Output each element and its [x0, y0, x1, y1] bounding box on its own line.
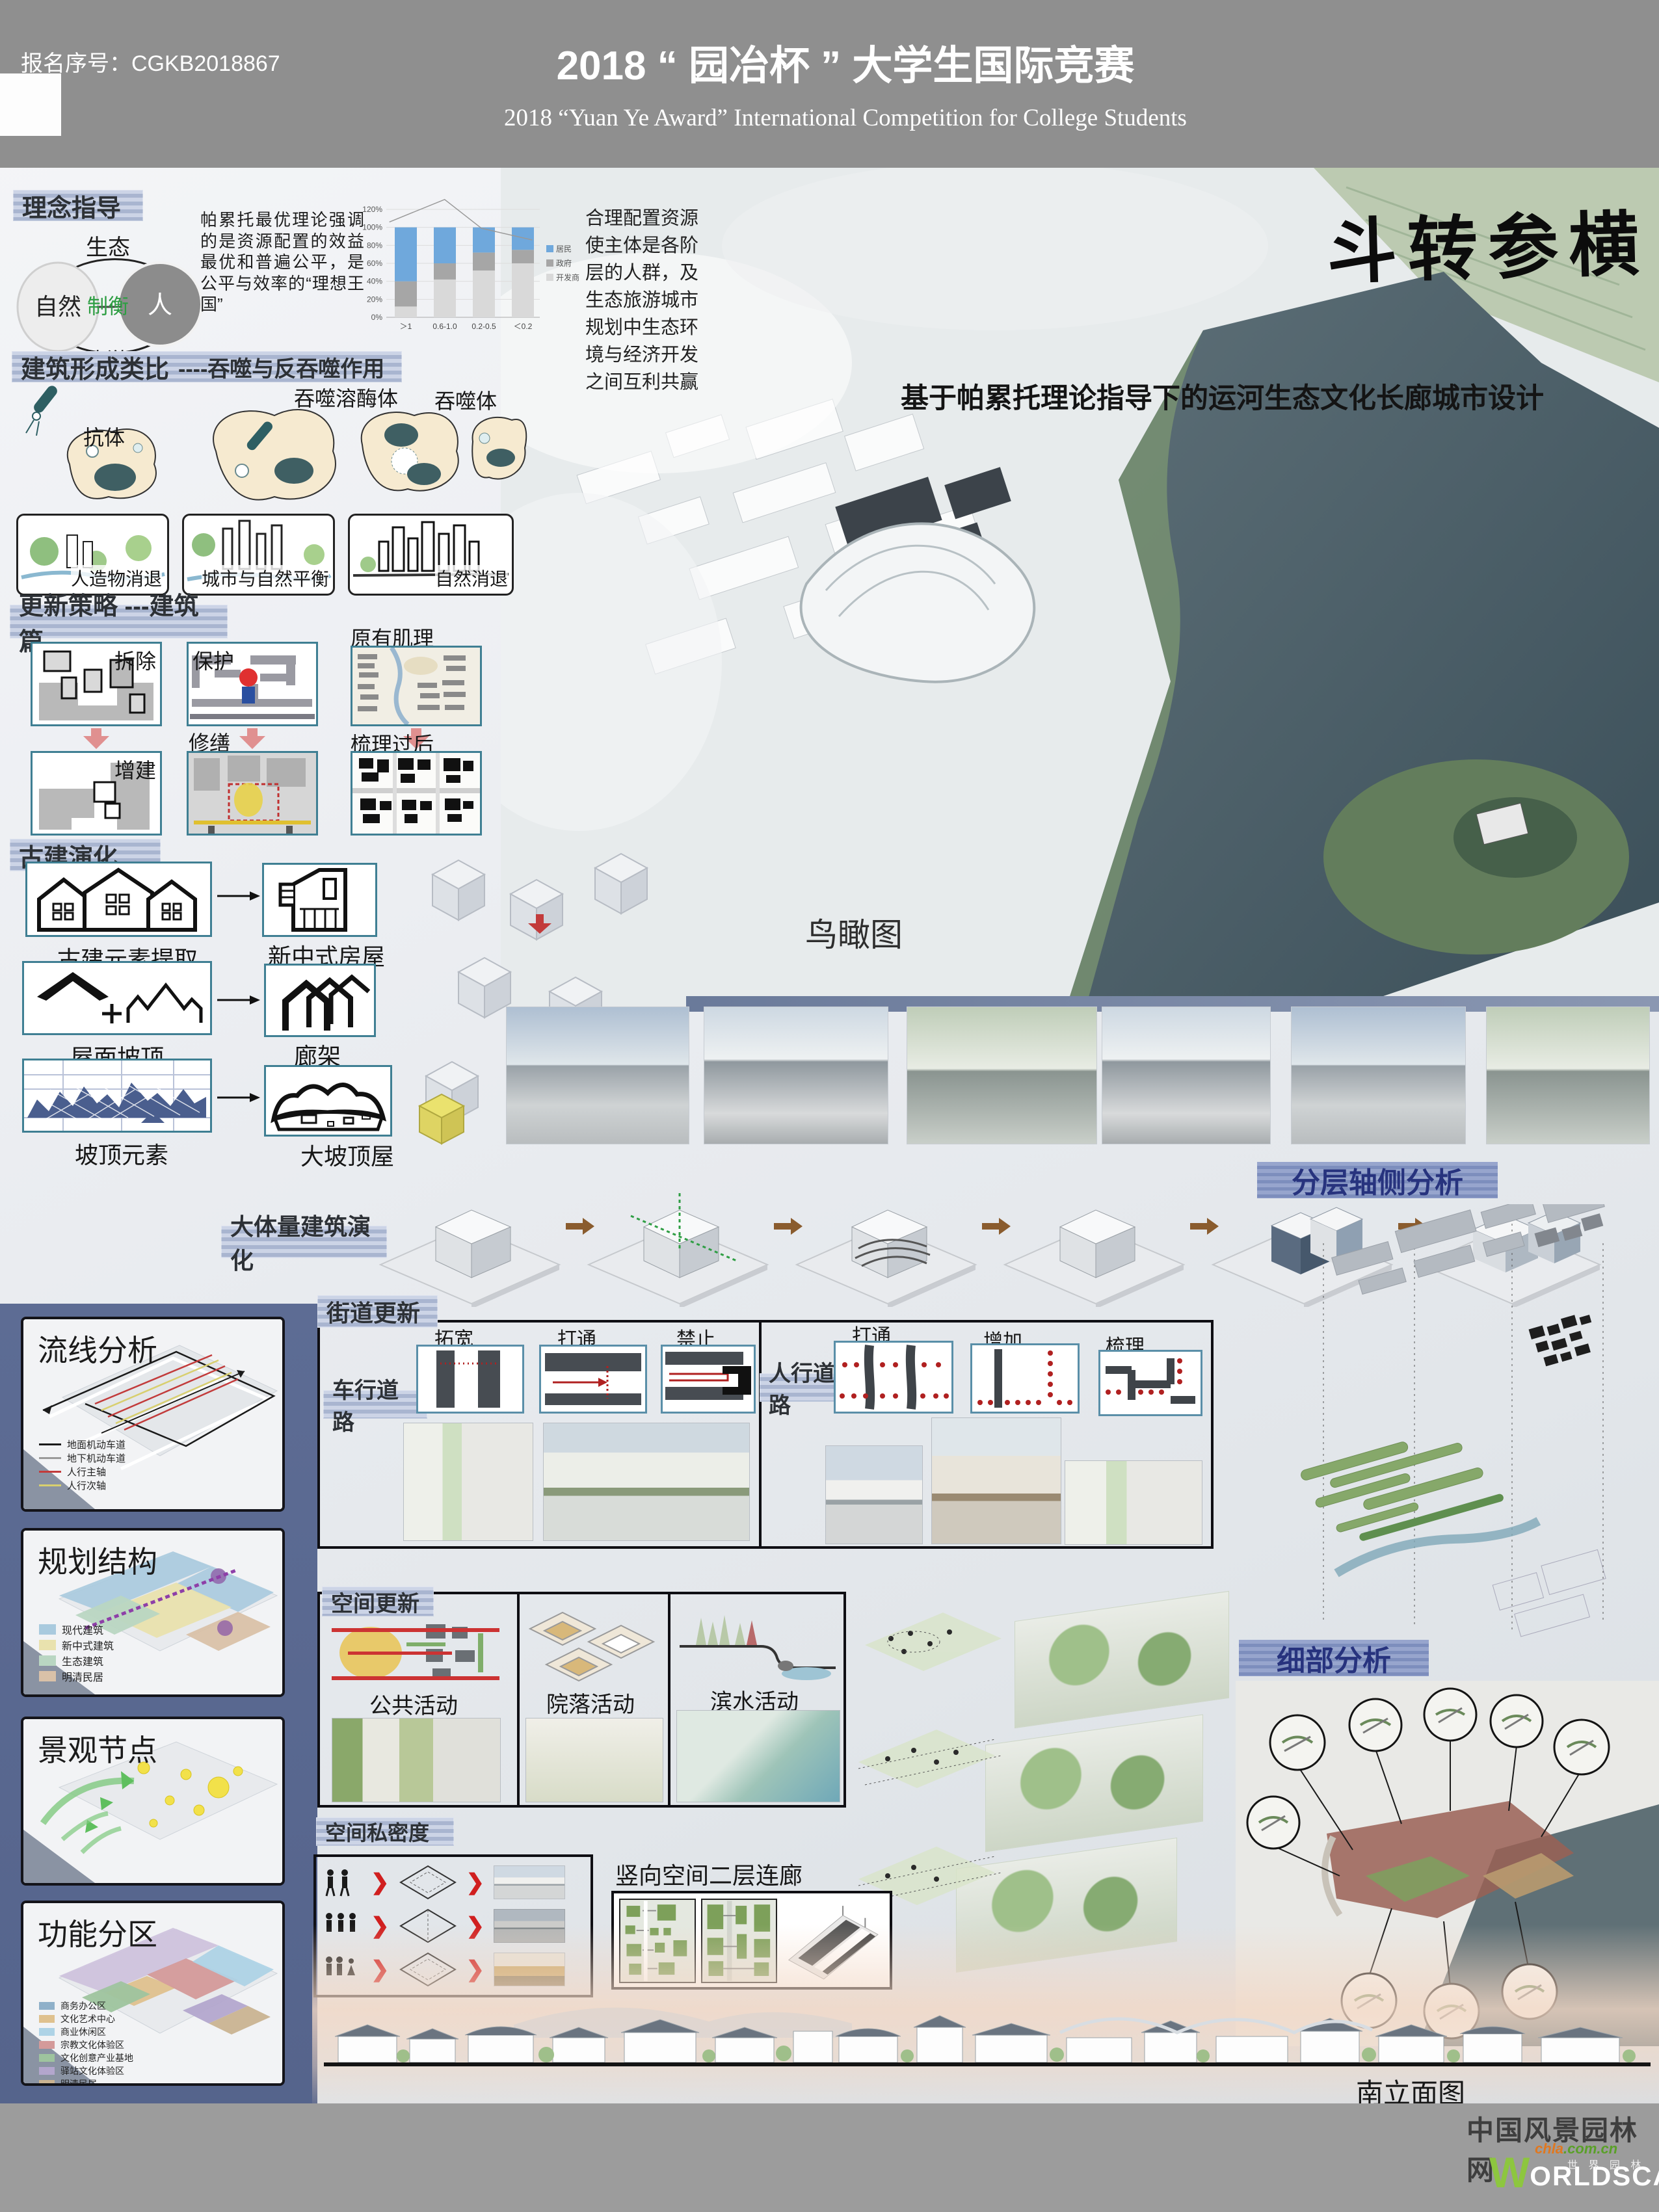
band-text: 空间私密度 [325, 1817, 429, 1847]
street-photo [543, 1423, 750, 1541]
poster-title-cn: 2018 “ 园冶杯 ” 大学生国际竞赛 [312, 33, 1379, 91]
cell-label-phagosome: 吞噬体 [434, 385, 497, 415]
down-arrow [83, 728, 109, 749]
chevron-icon: ❯ [466, 1869, 485, 1895]
render-thumbnail [1291, 1007, 1466, 1144]
vehicle-widen-box [416, 1345, 524, 1414]
privacy-photo [494, 1865, 565, 1899]
legend-row: 人行主轴 [39, 1465, 126, 1479]
svg-text:80%: 80% [367, 241, 382, 250]
people-icon [323, 1867, 362, 1897]
space-plan-image [525, 1718, 663, 1802]
forbid-diagram [663, 1347, 754, 1412]
legend-label: 地面机动车道 [67, 1438, 126, 1451]
band-text: 空间更新 [331, 1586, 419, 1618]
vehicle-forbid-box [661, 1345, 756, 1414]
legend-row: 文化创意产业基地 [39, 2051, 133, 2064]
svg-text:40%: 40% [367, 277, 382, 286]
venn-top: 生态 [86, 235, 130, 260]
legend-row: 生态建筑 [39, 1653, 114, 1668]
legend-swatch [39, 2041, 55, 2049]
space-plan-image [676, 1710, 840, 1802]
band-text: 街道更新 [326, 1295, 420, 1328]
ped-open-box [834, 1341, 953, 1414]
result-box-label: 城市与自然平衡 [202, 565, 329, 591]
section-band-massing: 大体量建筑演化 [221, 1226, 387, 1258]
svg-text:开发商: 开发商 [556, 272, 579, 282]
legend-row: 商务办公区 [39, 1999, 133, 2012]
svg-text:0%: 0% [371, 313, 383, 322]
evolution-row3-from-label: 坡顶元素 [75, 1137, 168, 1170]
open-diagram [541, 1347, 645, 1412]
right-arrow [217, 889, 260, 902]
legend-label: 明清民居 [60, 2077, 97, 2086]
svg-text:＞1: ＞1 [400, 322, 412, 331]
svg-text:20%: 20% [367, 295, 382, 304]
band-text: 分层轴侧分析 [1292, 1159, 1463, 1201]
poster-title-en: 2018 “Yuan Ye Award” International Compe… [312, 104, 1379, 132]
widen-diagram [418, 1347, 522, 1412]
registration-label: 报名序号： [21, 51, 131, 76]
chevron-icon: ❯ [371, 1869, 390, 1895]
venn-center: 制衡 [87, 295, 129, 318]
legend-label: 宗教文化体验区 [60, 2038, 124, 2051]
legend-row: 商业休闲区 [39, 2025, 133, 2038]
legend-swatch [39, 1457, 61, 1459]
evolution-row1-to-box [262, 863, 377, 937]
legend-row: 地下机动车道 [39, 1451, 126, 1465]
legend-swatch [39, 2080, 55, 2086]
watermark-sub: 世 界 园 林 [1567, 2156, 1645, 2172]
legend-label: 生态建筑 [62, 1653, 103, 1668]
header-white-patch [0, 73, 61, 136]
band-suffix: ----吞噬与反吞噬作用 [178, 351, 384, 383]
street-photo [931, 1417, 1061, 1544]
panel-title: 景观节点 [38, 1727, 157, 1770]
legend-label: 明清民居 [62, 1668, 103, 1684]
ped-open-diagram [836, 1343, 951, 1412]
ped-add-diagram [972, 1345, 1078, 1412]
section-band-detail: 细部分析 [1239, 1640, 1429, 1676]
space-column-label: 公共活动 [369, 1688, 458, 1720]
legend-row: 新中式建筑 [39, 1637, 114, 1653]
section-band-analogy: 建筑形成类比 ----吞噬与反吞噬作用 [12, 351, 402, 382]
section-band-concept: 理念指导 [13, 190, 143, 221]
legend-label: 商业休闲区 [60, 2025, 106, 2038]
waterfront-activity-diagram [676, 1606, 839, 1684]
concept-paragraph: 帕累托最优理论强调的是资源配置的效益最优和普遍公平，是公平与效率的“理想王国” [200, 209, 364, 336]
result-box-artificial-fade: 人造物消退 [16, 514, 169, 596]
pareto-chart: 0%20%40%60%80%100%120%＞10.6-1.00.2-0.5＜0… [363, 172, 592, 336]
old-houses-icon [27, 863, 210, 935]
right-arrow [217, 1091, 260, 1104]
legend-row: 驿站文化体验区 [39, 2064, 133, 2077]
ped-comb-box [1098, 1350, 1202, 1416]
render-thumbnail [1486, 1007, 1650, 1144]
down-arrow [239, 728, 265, 749]
legend-row: 人行次轴 [39, 1479, 126, 1492]
panel-title: 流线分析 [38, 1327, 157, 1370]
renewal-fabric-box [351, 646, 482, 726]
roof-elements-pattern [24, 1060, 210, 1131]
legend-swatch [39, 1624, 56, 1635]
panel-streamline-analysis: 流线分析 地面机动车道 地下机动车道 人行主轴 人行次轴 [21, 1317, 285, 1512]
street-box-divider [759, 1323, 762, 1546]
band-text: 理念指导 [22, 188, 121, 224]
render-thumbnail [907, 1007, 1097, 1144]
result-box-label: 自然消退 [435, 565, 508, 591]
ped-add-box [970, 1343, 1080, 1414]
legend-row: 地面机动车道 [39, 1438, 126, 1451]
section-band-privacy: 空间私密度 [316, 1817, 454, 1846]
section-band-space: 空间更新 [322, 1587, 434, 1616]
legend-label: 文化创意产业基地 [60, 2051, 133, 2064]
result-box-nature-fade: 自然消退 [348, 514, 514, 596]
legend-swatch [39, 1484, 61, 1486]
svg-text:60%: 60% [367, 259, 382, 268]
svg-text:0.2-0.5: 0.2-0.5 [471, 322, 496, 331]
legend-label: 地下机动车道 [67, 1451, 126, 1465]
svg-text:＜0.2: ＜0.2 [514, 322, 533, 331]
renewal-repair-box [187, 751, 318, 836]
calligraphy-title: 斗转参横 [1325, 187, 1653, 297]
renewal-combed-box [351, 751, 482, 836]
design-subtitle: 基于帕累托理论指导下的运河生态文化长廊城市设计 [901, 376, 1659, 416]
repair-photo [189, 753, 316, 834]
space-column-label: 院落活动 [546, 1687, 635, 1718]
legend-row: 文化艺术中心 [39, 2012, 133, 2025]
space-plan-image [332, 1718, 501, 1802]
protect-label: 保护 [192, 645, 234, 675]
addition-label: 增建 [114, 754, 156, 784]
evolution-row2-to-box [264, 964, 376, 1037]
legend-swatch [39, 2015, 55, 2023]
privacy-row: ❯ ❯ [323, 1864, 584, 1901]
legend-label: 商务办公区 [60, 1999, 106, 2012]
svg-text:120%: 120% [363, 205, 382, 214]
bottom-strip [0, 2103, 1659, 2212]
legend-swatch [39, 2067, 55, 2075]
svg-text:居民: 居民 [556, 244, 572, 254]
legend-label: 文化艺术中心 [60, 2012, 115, 2025]
fabric-map [352, 648, 480, 724]
gallery-frame-icon [266, 966, 374, 1035]
venn-left: 自然 [34, 293, 81, 320]
new-chinese-house-icon [264, 865, 375, 935]
layered-axon-diagram [1262, 1204, 1659, 1639]
ped-comb-diagram [1100, 1352, 1201, 1414]
space-box-divider [668, 1594, 670, 1805]
demolish-label: 拆除 [114, 645, 156, 675]
birdseye-label: 鸟瞰图 [805, 909, 903, 956]
render-thumbnail [704, 1007, 888, 1144]
renewal-protect-box: 保护 [187, 642, 318, 726]
section-band-street: 街道更新 [317, 1295, 438, 1328]
legend-row: 现代建筑 [39, 1622, 114, 1637]
svg-text:100%: 100% [363, 223, 382, 232]
courtyard-activity-diagram [524, 1606, 667, 1687]
render-thumbnail [1102, 1007, 1271, 1144]
venn-right: 人 [148, 292, 172, 319]
band-text: 细部分析 [1277, 1637, 1391, 1679]
legend-swatch [39, 2002, 55, 2010]
band-text: 大体量建筑演化 [230, 1208, 378, 1276]
panel-function-zones: 功能分区 商务办公区 文化艺术中心 商业休闲区 宗教文化体验区 文化创意产业基地… [21, 1901, 285, 2086]
section-band-renewal: 更新策略 ---建筑篇 [10, 605, 228, 639]
evolution-row3-to-label: 大坡顶屋 [300, 1138, 394, 1172]
concept-side-note: 合理配置资源使主体是各阶层的人群，及生态旅游城市规划中生态环境与经济开发之间互利… [585, 205, 704, 419]
big-roof-icon [266, 1067, 390, 1135]
street-photo [1065, 1460, 1202, 1545]
legend-swatch [39, 1671, 56, 1681]
registration-value: CGKB2018867 [131, 51, 280, 76]
legend-swatch [39, 2054, 55, 2062]
competition-poster: 报名序号：CGKB2018867 2018 “ 园冶杯 ” 大学生国际竞赛 20… [0, 0, 1659, 2212]
legend-row: 明清民居 [39, 2077, 133, 2086]
svg-text:0.6-1.0: 0.6-1.0 [432, 322, 457, 331]
evolution-row2-from-box [22, 961, 212, 1035]
svg-text:政府: 政府 [556, 258, 572, 268]
legend-row: 明清民居 [39, 1668, 114, 1684]
south-elevation-drawing [319, 1999, 1656, 2070]
renewal-demolish-box: 拆除 [31, 642, 162, 726]
legend-swatch [39, 1471, 61, 1473]
corridor-label: 竖向空间二层连廊 [615, 1857, 803, 1891]
public-activity-diagram [328, 1620, 504, 1685]
panel-planning-structure: 规划结构 现代建筑 新中式建筑 生态建筑 明清民居 [21, 1528, 285, 1697]
cell-label-antibody: 抗体 [83, 421, 125, 451]
evolution-row3-to-box [264, 1065, 392, 1137]
legend-swatch [39, 2028, 55, 2036]
street-photo [403, 1423, 533, 1541]
panel-landscape-nodes: 景观节点 [21, 1717, 285, 1886]
legend-label: 人行主轴 [67, 1465, 106, 1479]
green-iso-tile [1015, 1591, 1229, 1728]
panel-title: 功能分区 [38, 1911, 157, 1954]
diamond-volume-icon [399, 1864, 457, 1901]
vehicle-road-label: 车行道路 [323, 1390, 427, 1419]
roof-slope-icon [24, 963, 210, 1033]
legend-label: 人行次轴 [67, 1479, 106, 1492]
legend-label: 现代建筑 [62, 1622, 103, 1637]
function-zones-legend: 商务办公区 文化艺术中心 商业休闲区 宗教文化体验区 文化创意产业基地 驿站文化… [39, 1999, 133, 2086]
legend-swatch [39, 1655, 56, 1666]
registration-number: 报名序号：CGKB2018867 [21, 46, 280, 77]
cell-label-phagolysosome: 吞噬溶酶体 [294, 382, 398, 412]
section-band-axon: 分层轴侧分析 [1257, 1162, 1498, 1198]
legend-row: 宗教文化体验区 [39, 2038, 133, 2051]
planning-legend: 现代建筑 新中式建筑 生态建筑 明清民居 [39, 1622, 114, 1684]
render-thumbnail [506, 1007, 689, 1144]
legend-swatch [39, 1640, 56, 1650]
panel-title: 规划结构 [38, 1538, 157, 1581]
worldscape-w: W [1489, 2153, 1530, 2192]
figure-ground-map [352, 753, 480, 834]
evolution-row3-from-box [22, 1059, 212, 1133]
right-arrow [217, 994, 260, 1007]
legend-label: 新中式建筑 [62, 1637, 114, 1653]
result-box-city-nature-balance: 城市与自然平衡 [182, 514, 335, 596]
street-photo [825, 1445, 923, 1544]
legend-swatch [39, 1443, 61, 1445]
legend-label: 驿站文化体验区 [60, 2064, 124, 2077]
renewal-addition-box: 增建 [31, 751, 162, 836]
streamline-legend: 地面机动车道 地下机动车道 人行主轴 人行次轴 [39, 1438, 126, 1492]
evolution-row1-from-box [25, 862, 212, 937]
space-box-divider [517, 1594, 520, 1805]
green-iso-tile [985, 1714, 1203, 1852]
vehicle-open-box [539, 1345, 647, 1414]
